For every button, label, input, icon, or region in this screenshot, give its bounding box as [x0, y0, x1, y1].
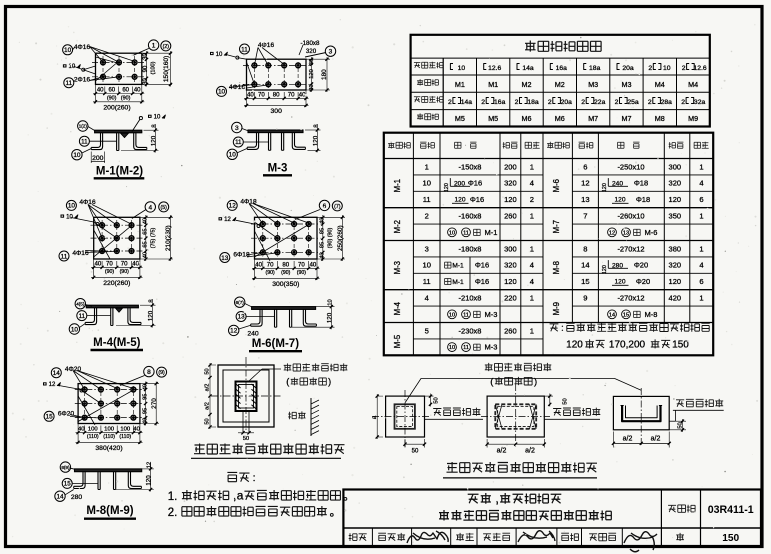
svg-text:4Φ20: 4Φ20	[65, 366, 82, 373]
svg-text:95: 95	[142, 408, 148, 414]
svg-text:120: 120	[146, 475, 153, 486]
svg-text:Φ20: Φ20	[634, 261, 648, 270]
svg-text:6Φ18: 6Φ18	[233, 252, 250, 259]
svg-text:1: 1	[699, 212, 703, 221]
svg-text:8: 8	[313, 124, 319, 127]
svg-text:40: 40	[133, 427, 140, 433]
svg-text:M5: M5	[455, 114, 465, 123]
svg-text:120: 120	[614, 279, 625, 286]
svg-text:(90): (90)	[265, 270, 274, 276]
svg-text:(: (	[490, 376, 494, 387]
svg-text:M-1: M-1	[393, 179, 402, 192]
svg-text:-270x12: -270x12	[617, 294, 644, 303]
svg-text:4: 4	[530, 179, 534, 188]
svg-text:50: 50	[563, 398, 569, 404]
svg-text:6(7): 6(7)	[236, 300, 245, 305]
svg-text:220: 220	[504, 294, 517, 303]
svg-text:8: 8	[583, 244, 587, 253]
svg-text:280: 280	[71, 494, 83, 501]
svg-text:120: 120	[147, 310, 154, 321]
svg-text:(110): (110)	[87, 434, 99, 440]
svg-text:-230x8: -230x8	[459, 326, 482, 335]
svg-text:a: a	[237, 488, 244, 502]
svg-text:40: 40	[143, 218, 149, 224]
svg-text:4Φ18: 4Φ18	[240, 199, 257, 206]
svg-text:10: 10	[154, 115, 161, 121]
svg-text:2: 2	[425, 212, 429, 221]
svg-text:300: 300	[504, 244, 517, 253]
svg-text:M-3: M-3	[393, 261, 402, 274]
svg-text:10: 10	[449, 230, 455, 236]
svg-text:280: 280	[612, 262, 623, 269]
svg-text:2Φ16: 2Φ16	[74, 77, 91, 84]
svg-text:85: 85	[320, 228, 326, 234]
svg-text:9: 9	[583, 294, 587, 303]
svg-text:1: 1	[530, 326, 534, 335]
svg-text:380(420): 380(420)	[95, 445, 122, 452]
svg-text:10: 10	[449, 312, 455, 318]
svg-text:-180x8: -180x8	[459, 244, 482, 253]
svg-text:4: 4	[530, 277, 534, 286]
svg-text:14a: 14a	[522, 65, 534, 72]
svg-text:420: 420	[669, 294, 682, 303]
svg-text:40: 40	[97, 88, 104, 94]
svg-text:M-6: M-6	[645, 228, 658, 237]
svg-text:M-8: M-8	[645, 310, 658, 319]
svg-text:1: 1	[699, 244, 703, 253]
svg-text:6: 6	[323, 203, 327, 210]
svg-text:8: 8	[148, 299, 154, 302]
svg-text:2: 2	[448, 99, 452, 106]
svg-text:4: 4	[530, 261, 534, 270]
svg-text:18a: 18a	[589, 65, 601, 72]
svg-text:6: 6	[699, 195, 703, 204]
svg-text:11: 11	[423, 195, 431, 204]
svg-text:10: 10	[66, 214, 73, 220]
svg-text:11: 11	[79, 313, 86, 320]
svg-text:4: 4	[148, 204, 152, 211]
svg-text:10: 10	[422, 261, 430, 270]
svg-text:1: 1	[530, 244, 534, 253]
svg-text:1: 1	[699, 294, 703, 303]
svg-text:10: 10	[229, 152, 237, 159]
svg-text:11: 11	[65, 80, 72, 87]
svg-text:270: 270	[151, 398, 158, 409]
svg-text:240: 240	[612, 180, 623, 187]
svg-text:8: 8	[151, 124, 157, 127]
svg-text:22a: 22a	[594, 99, 606, 106]
svg-text:13: 13	[221, 255, 229, 262]
svg-text:M9: M9	[688, 114, 698, 123]
svg-text:95: 95	[142, 394, 148, 400]
svg-text:260: 260	[504, 212, 517, 221]
svg-text:-160x8: -160x8	[459, 212, 482, 221]
svg-text:12: 12	[581, 179, 589, 188]
svg-text:13: 13	[581, 195, 589, 204]
svg-text:100: 100	[120, 427, 131, 433]
svg-text:150: 150	[722, 533, 739, 544]
svg-text:-260x10: -260x10	[617, 212, 644, 221]
svg-text:16a: 16a	[556, 65, 568, 72]
svg-text:14: 14	[56, 494, 64, 501]
svg-text:12: 12	[230, 328, 238, 335]
svg-text:Φ16: Φ16	[475, 277, 489, 286]
svg-text:M1: M1	[455, 80, 465, 89]
svg-text:8: 8	[147, 369, 151, 376]
svg-text:300: 300	[669, 162, 682, 171]
svg-text:2: 2	[648, 99, 652, 106]
svg-text:28a: 28a	[661, 99, 673, 106]
svg-text:M2: M2	[555, 80, 565, 89]
svg-text:200: 200	[504, 162, 517, 171]
svg-text:120: 120	[669, 195, 682, 204]
svg-text:M-6(M-7): M-6(M-7)	[252, 338, 299, 350]
svg-text:60: 60	[122, 88, 129, 94]
svg-text:M-8(M-9): M-8(M-9)	[86, 505, 133, 517]
svg-text:(110): (110)	[103, 434, 115, 440]
svg-text:50: 50	[243, 436, 249, 442]
svg-text:40: 40	[142, 384, 148, 390]
svg-text:10: 10	[216, 52, 223, 58]
svg-text:4(5): 4(5)	[76, 301, 85, 306]
svg-text:80: 80	[273, 91, 280, 98]
svg-text:10: 10	[218, 89, 226, 96]
svg-text:4Φ16: 4Φ16	[258, 42, 275, 49]
svg-text:M-8: M-8	[552, 261, 561, 274]
svg-text:13: 13	[238, 314, 245, 321]
svg-text:Φ18: Φ18	[636, 195, 650, 204]
svg-text:15: 15	[581, 277, 589, 286]
svg-text:M7: M7	[622, 114, 632, 123]
svg-text:2: 2	[681, 99, 685, 106]
svg-text:90: 90	[143, 65, 149, 72]
svg-text:11: 11	[463, 312, 469, 318]
svg-text:11: 11	[423, 277, 431, 286]
svg-text:4: 4	[699, 179, 703, 188]
svg-text:16a: 16a	[494, 99, 506, 106]
svg-text:): )	[534, 376, 537, 387]
svg-text:a/2: a/2	[497, 448, 507, 455]
svg-text:1: 1	[530, 162, 534, 171]
svg-text:50: 50	[412, 449, 419, 455]
svg-text:70: 70	[267, 261, 274, 268]
svg-text:11: 11	[241, 46, 248, 53]
svg-text:(2): (2)	[163, 44, 170, 50]
svg-text:70: 70	[298, 261, 305, 268]
svg-text:180: 180	[321, 69, 328, 80]
svg-text:M-2: M-2	[393, 220, 402, 233]
svg-text:320: 320	[669, 261, 682, 270]
svg-text:15: 15	[623, 312, 629, 318]
svg-text:M6: M6	[555, 114, 565, 123]
svg-text:M-3: M-3	[268, 163, 288, 175]
svg-text:(100): (100)	[150, 61, 156, 74]
svg-text:5: 5	[425, 326, 429, 335]
svg-text:10: 10	[71, 326, 79, 333]
svg-text:10: 10	[458, 65, 466, 72]
svg-text:50: 50	[205, 368, 211, 374]
svg-text:40: 40	[134, 88, 141, 94]
svg-text:1: 1	[530, 212, 534, 221]
svg-text:20a: 20a	[622, 65, 634, 72]
svg-text:320: 320	[504, 179, 517, 188]
svg-text:(90) (90): (90) (90)	[328, 227, 334, 248]
svg-text:200: 200	[92, 155, 104, 162]
svg-text:): )	[328, 377, 331, 387]
svg-text:10: 10	[73, 152, 81, 159]
svg-text:40: 40	[142, 418, 148, 424]
svg-text:70: 70	[106, 260, 113, 267]
svg-text:1.: 1.	[168, 491, 178, 503]
svg-text:11: 11	[81, 138, 88, 145]
svg-text:14: 14	[609, 312, 615, 318]
svg-text:40: 40	[78, 427, 85, 433]
svg-text:1(2): 1(2)	[79, 124, 88, 129]
svg-text:300(350): 300(350)	[272, 281, 299, 288]
svg-text:300: 300	[271, 108, 283, 115]
svg-text:a/2: a/2	[525, 448, 535, 455]
svg-text:M3: M3	[588, 80, 598, 89]
svg-text:(90): (90)	[281, 270, 290, 276]
svg-text:100: 100	[88, 427, 99, 433]
svg-text:10: 10	[68, 203, 76, 210]
svg-text:4Φ16: 4Φ16	[74, 44, 91, 51]
svg-text:(5): (5)	[161, 205, 168, 211]
svg-text:M-3: M-3	[485, 343, 498, 352]
svg-text:M-4(M-5): M-4(M-5)	[93, 337, 140, 349]
svg-text:4: 4	[425, 294, 429, 303]
svg-text:380: 380	[669, 244, 682, 253]
svg-text:210(230): 210(230)	[165, 225, 172, 251]
svg-text:30: 30	[309, 84, 315, 90]
svg-text:70: 70	[288, 91, 295, 98]
svg-text:240: 240	[247, 331, 259, 338]
svg-text:320: 320	[306, 48, 317, 55]
svg-text:M-1(M-2): M-1(M-2)	[96, 166, 143, 178]
svg-text:4Φ16: 4Φ16	[79, 199, 96, 206]
svg-text:M1: M1	[488, 80, 498, 89]
svg-text:M-1: M-1	[485, 228, 498, 237]
svg-text:(7): (7)	[334, 204, 341, 210]
svg-text:2: 2	[515, 99, 519, 106]
svg-text:25a: 25a	[627, 99, 639, 106]
svg-text:12: 12	[147, 462, 153, 468]
svg-text:a/2: a/2	[205, 402, 211, 410]
svg-text:(90): (90)	[297, 270, 306, 276]
svg-text:6: 6	[699, 277, 703, 286]
svg-text:M8: M8	[655, 114, 665, 123]
svg-text:15: 15	[64, 481, 71, 488]
svg-text:70: 70	[258, 91, 265, 98]
svg-text:350: 350	[669, 212, 682, 221]
svg-text:12.6: 12.6	[488, 65, 501, 72]
svg-text:M-5: M-5	[393, 334, 402, 348]
svg-text:260: 260	[504, 326, 517, 335]
svg-text:40: 40	[310, 261, 317, 268]
svg-text:4Φ16: 4Φ16	[72, 250, 89, 257]
svg-text:65: 65	[143, 241, 149, 247]
svg-text:120: 120	[312, 135, 319, 146]
svg-text:70: 70	[121, 260, 128, 267]
svg-text:12: 12	[229, 203, 237, 210]
svg-text:10: 10	[64, 47, 72, 54]
svg-text:100: 100	[104, 427, 115, 433]
svg-text:50: 50	[434, 397, 440, 403]
svg-text:1: 1	[425, 162, 429, 171]
svg-text:10: 10	[449, 345, 455, 351]
svg-text:M3: M3	[622, 80, 632, 89]
svg-text:120: 120	[504, 277, 517, 286]
svg-text:2.: 2.	[168, 507, 178, 519]
svg-text:15: 15	[46, 414, 54, 421]
svg-text:Φ20: Φ20	[636, 277, 650, 286]
svg-text:120: 120	[669, 277, 682, 286]
svg-text:(90): (90)	[107, 95, 117, 101]
svg-text:M2: M2	[522, 80, 532, 89]
svg-text:32a: 32a	[694, 99, 706, 106]
svg-text:M-6: M-6	[552, 179, 561, 192]
svg-text:2: 2	[581, 99, 585, 106]
svg-text:-210x8: -210x8	[459, 294, 482, 303]
svg-text:1: 1	[152, 43, 156, 50]
svg-text:(90): (90)	[105, 269, 114, 275]
svg-text:14: 14	[53, 370, 61, 377]
svg-text:-150x8: -150x8	[459, 162, 482, 171]
svg-text:120: 120	[150, 135, 157, 146]
svg-text:8(9): 8(9)	[61, 465, 70, 470]
svg-text:120: 120	[309, 69, 315, 79]
svg-text:4Φ16: 4Φ16	[229, 84, 246, 91]
svg-text:200(260): 200(260)	[103, 105, 130, 112]
svg-text:12: 12	[224, 217, 231, 223]
svg-text:50: 50	[205, 418, 211, 424]
svg-text:30: 30	[143, 53, 149, 60]
svg-text:65: 65	[143, 228, 149, 234]
svg-text:1: 1	[699, 162, 703, 171]
svg-text:(90): (90)	[121, 95, 131, 101]
svg-text:(: (	[286, 377, 289, 387]
svg-text:40: 40	[143, 252, 149, 258]
svg-text:2: 2	[530, 195, 534, 204]
svg-text:10: 10	[663, 65, 671, 72]
svg-text:150(160): 150(160)	[163, 56, 170, 82]
svg-text:M-3: M-3	[485, 310, 498, 319]
svg-text:3: 3	[235, 125, 239, 132]
svg-text:170,200: 170,200	[609, 340, 646, 351]
svg-text:M-7: M-7	[552, 220, 561, 233]
svg-text:11: 11	[61, 253, 68, 260]
svg-text:40: 40	[320, 217, 326, 223]
svg-text:80: 80	[282, 261, 289, 268]
svg-text:40: 40	[132, 260, 139, 267]
svg-text:(90): (90)	[120, 269, 129, 275]
svg-text:Φ16: Φ16	[470, 195, 484, 204]
svg-text:18a: 18a	[527, 99, 539, 106]
svg-text:03R411-1: 03R411-1	[708, 504, 754, 516]
svg-text:250(260): 250(260)	[337, 225, 344, 251]
svg-text:150: 150	[672, 340, 689, 351]
svg-text:-270x12: -270x12	[617, 244, 644, 253]
svg-text:-250x10: -250x10	[617, 162, 644, 171]
svg-text:a/2: a/2	[651, 436, 661, 443]
svg-text:6Φ20: 6Φ20	[58, 410, 75, 417]
svg-text:M5: M5	[488, 114, 498, 123]
svg-text:M-1: M-1	[452, 279, 464, 286]
svg-text:20a: 20a	[561, 99, 573, 106]
svg-text:3: 3	[329, 49, 333, 56]
svg-text:M7: M7	[588, 114, 598, 123]
svg-text:3: 3	[425, 244, 429, 253]
svg-text:120: 120	[504, 195, 517, 204]
svg-text:12: 12	[609, 230, 615, 236]
svg-text:2: 2	[481, 99, 485, 106]
svg-text:200: 200	[454, 180, 465, 187]
svg-text:11: 11	[463, 345, 469, 351]
svg-text:40: 40	[95, 260, 102, 267]
svg-text:30: 30	[309, 59, 315, 65]
svg-text:11: 11	[235, 139, 242, 146]
svg-text:13: 13	[623, 230, 629, 236]
svg-text:12.6: 12.6	[693, 65, 706, 72]
svg-text:120: 120	[602, 183, 608, 192]
svg-text:120: 120	[602, 265, 608, 274]
svg-text:-180x8: -180x8	[301, 40, 320, 47]
svg-text:a/2: a/2	[205, 384, 211, 392]
svg-text:120: 120	[326, 312, 333, 323]
svg-text:120: 120	[454, 197, 465, 204]
svg-text:60: 60	[108, 88, 115, 94]
svg-text:120: 120	[566, 340, 583, 351]
svg-text:85: 85	[320, 242, 326, 248]
svg-text:40: 40	[320, 252, 326, 258]
svg-text:14a: 14a	[461, 99, 473, 106]
svg-text:a/2: a/2	[623, 436, 633, 443]
svg-text:M4: M4	[655, 80, 665, 89]
svg-text:50: 50	[677, 422, 683, 428]
svg-text:2: 2	[615, 99, 619, 106]
svg-text:2: 2	[682, 65, 686, 72]
svg-text:220(260): 220(260)	[103, 280, 130, 287]
svg-text:M6: M6	[522, 114, 532, 123]
svg-text:10: 10	[69, 64, 76, 70]
svg-text:(75) (75): (75) (75)	[151, 227, 157, 248]
svg-text:40: 40	[255, 261, 262, 268]
svg-text:2: 2	[548, 99, 552, 106]
svg-text:4: 4	[699, 261, 703, 270]
svg-text:6: 6	[583, 162, 587, 171]
svg-text:7: 7	[583, 212, 587, 221]
svg-text:M-4: M-4	[393, 301, 402, 315]
svg-text:a: a	[371, 415, 378, 419]
svg-text:Φ18: Φ18	[634, 179, 648, 188]
svg-text:M-1: M-1	[452, 263, 464, 270]
svg-text:320: 320	[504, 261, 517, 270]
svg-text:120: 120	[614, 197, 625, 204]
svg-text:(9): (9)	[158, 370, 165, 376]
svg-text:120: 120	[444, 183, 450, 192]
svg-text:320: 320	[669, 179, 682, 188]
svg-text:1: 1	[530, 294, 534, 303]
svg-text:(110): (110)	[119, 434, 131, 440]
svg-text:30: 30	[143, 78, 149, 85]
svg-text:40: 40	[247, 91, 254, 98]
svg-text:14: 14	[581, 261, 589, 270]
svg-text:2: 2	[648, 65, 652, 72]
svg-text:Φ16: Φ16	[475, 261, 489, 270]
svg-text:11: 11	[463, 230, 469, 236]
svg-text:10: 10	[422, 179, 430, 188]
svg-text:M4: M4	[688, 80, 698, 89]
